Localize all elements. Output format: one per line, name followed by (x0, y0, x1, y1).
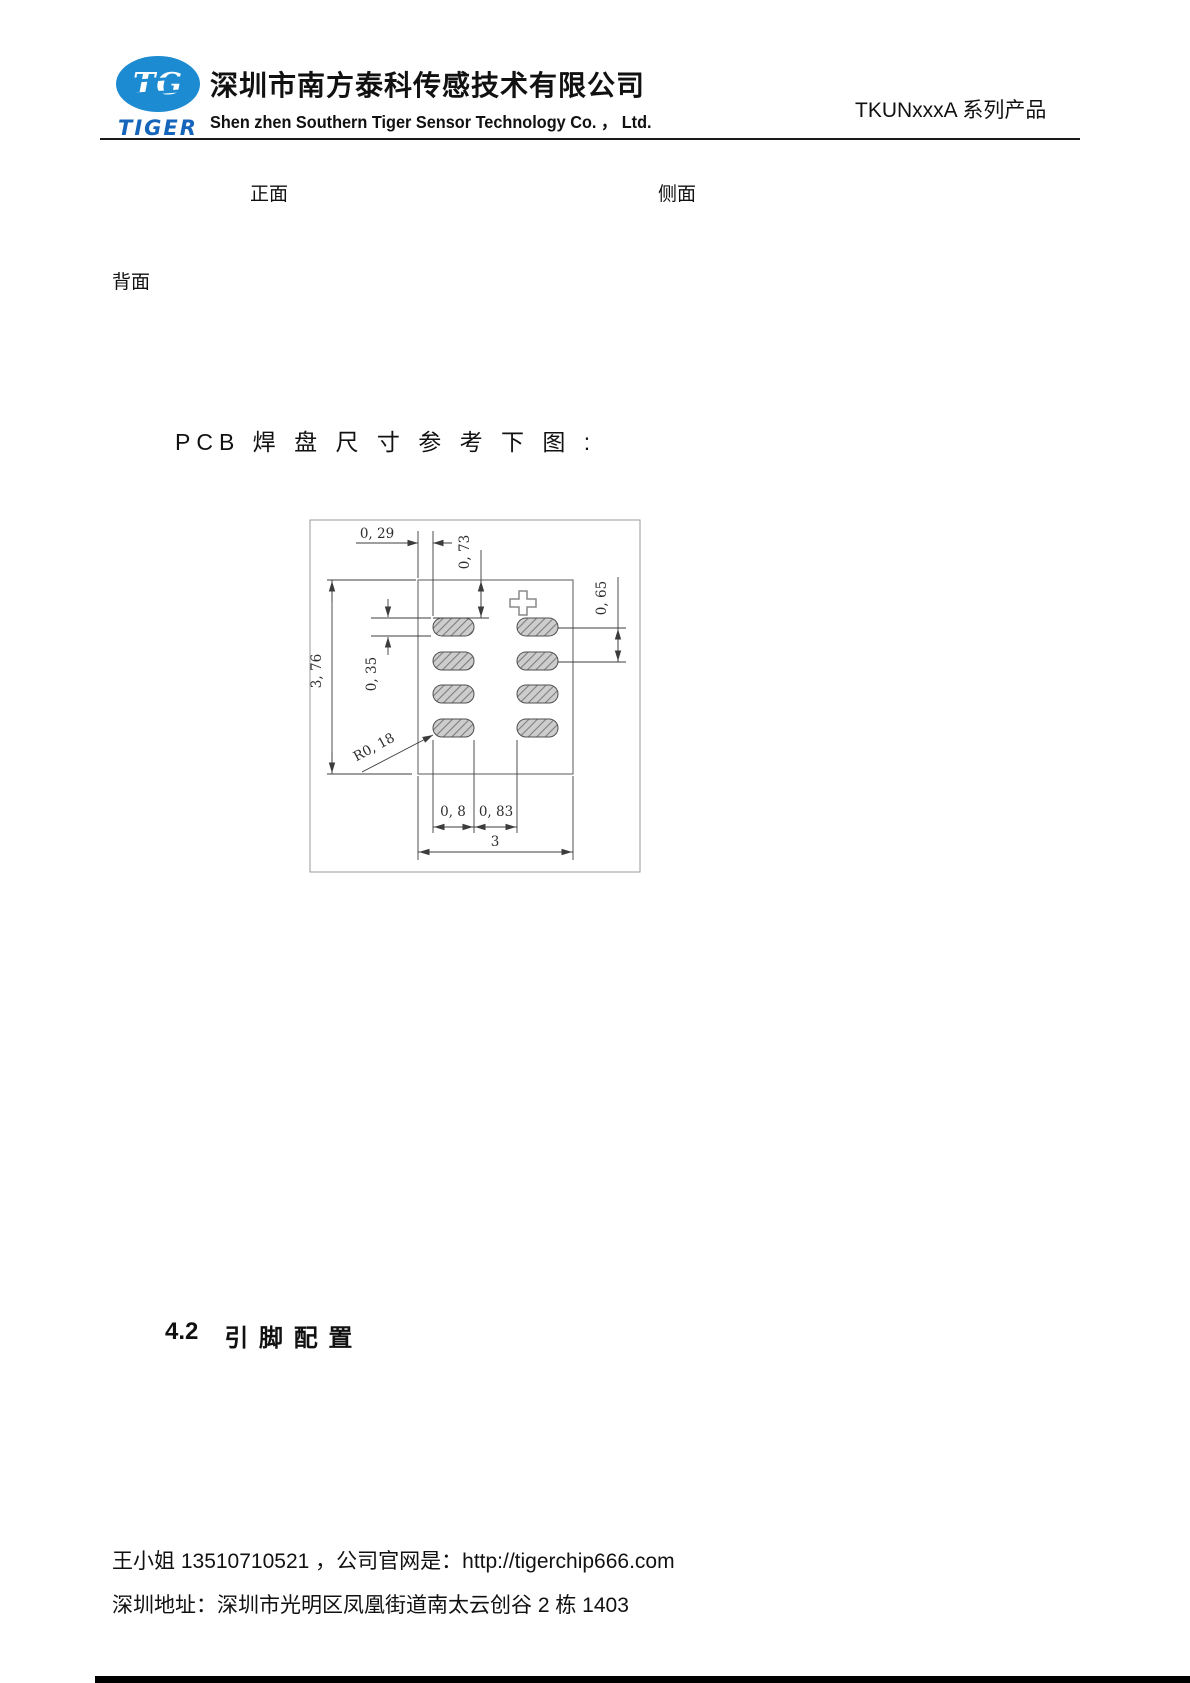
product-series-label: TKUNxxxA 系列产品 (855, 94, 1046, 124)
solder-pad (433, 719, 474, 737)
logo-wordmark: TIGER (112, 116, 204, 140)
solder-pad (433, 618, 474, 636)
dim-label-376: 3, 76 (309, 654, 325, 688)
footer-address-line: 深圳地址：深圳市光明区凤凰街道南太云创谷 2 栋 1403 (112, 1589, 629, 1619)
solder-pad (517, 652, 558, 670)
company-name-chinese: 深圳市南方泰科传感技术有限公司 (210, 64, 645, 104)
package-outline (418, 580, 573, 774)
document-page: TG TIGER 深圳市南方泰科传感技术有限公司 Shen zhen South… (0, 0, 1190, 1683)
section-heading-4-2: 4.2 引 脚 配 置 (165, 1318, 354, 1353)
dim-label-073: 0, 73 (457, 535, 473, 569)
pcb-pad-drawing: 0, 29 0, 73 3, 76 0, 35 0, 65 R0, 18 0, … (295, 505, 655, 890)
solder-pad (433, 685, 474, 703)
company-name-english: Shen zhen Southern Tiger Sensor Technolo… (210, 109, 652, 134)
solder-pad (517, 719, 558, 737)
dim-label-r018: R0, 18 (351, 730, 398, 765)
section-number: 4.2 (165, 1318, 198, 1353)
header-divider (100, 138, 1080, 140)
dim-label-029: 0, 29 (360, 526, 394, 542)
pin1-cross-icon (510, 591, 536, 615)
solder-pad (517, 618, 558, 636)
solder-pad (517, 685, 558, 703)
dim-label-08: 0, 8 (440, 804, 466, 820)
label-back-view: 背面 (112, 267, 150, 294)
label-front-view: 正面 (250, 179, 288, 206)
dim-label-065: 0, 65 (594, 581, 610, 615)
label-side-view: 侧面 (658, 179, 696, 206)
dim-label-035: 0, 35 (364, 657, 380, 691)
dim-label-083: 0, 83 (479, 804, 513, 820)
pcb-pad-caption: PCB 焊 盘 尺 寸 参 考 下 图 : (175, 423, 596, 457)
footer-contact-line: 王小姐 13510710521 ，公司官网是：http://tigerchip6… (112, 1545, 675, 1575)
logo-monogram: TG (133, 67, 183, 102)
drawing-frame (310, 520, 640, 872)
solder-pad (433, 652, 474, 670)
dim-label-3: 3 (491, 834, 500, 850)
section-title: 引 脚 配 置 (224, 1318, 354, 1353)
tiger-logo-icon: TG (116, 56, 200, 112)
bottom-bar (95, 1676, 1190, 1683)
solder-pads (433, 618, 558, 737)
